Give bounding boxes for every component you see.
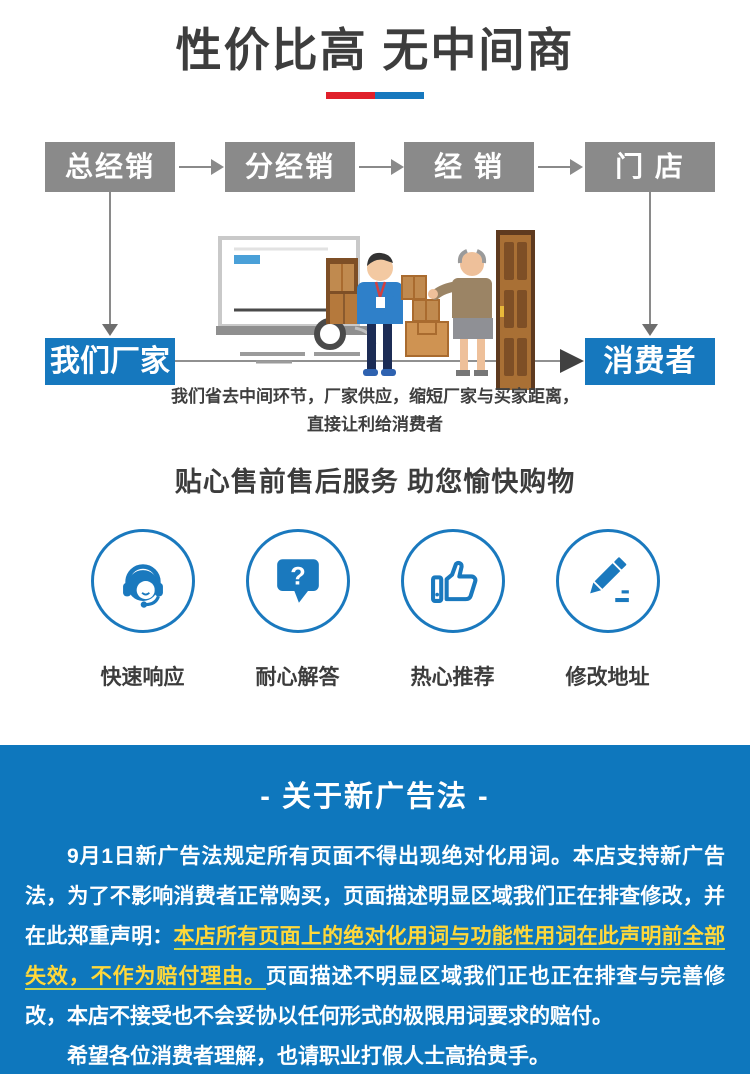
- service-circle: ?: [246, 529, 350, 633]
- arrow-line: [359, 166, 391, 168]
- arrow-right-icon: [570, 159, 583, 175]
- title-section: 性价比高 无中间商: [0, 0, 750, 99]
- title-underline: [326, 92, 424, 99]
- service-circle: [91, 529, 195, 633]
- flow-box-dealer: 经 销: [404, 142, 534, 192]
- service-item-patient-answers: ? 耐心解答: [245, 529, 351, 691]
- arrow-line: [538, 166, 570, 168]
- service-label: 耐心解答: [256, 661, 340, 691]
- service-circle: [401, 529, 505, 633]
- floor-boxes: [406, 300, 448, 356]
- title-underline-blue: [375, 92, 424, 99]
- consumer-box: 消费者: [585, 338, 715, 385]
- service-item-fast-response: 快速响应: [90, 529, 196, 691]
- service-item-recommendation: 热心推荐: [400, 529, 506, 691]
- cargo-boxes: [326, 258, 358, 324]
- flow-box-store: 门 店: [585, 142, 715, 192]
- service-circle: [556, 529, 660, 633]
- delivery-illustration: [210, 230, 535, 398]
- arrow-right-icon: [391, 159, 404, 175]
- arrow-line: [179, 166, 211, 168]
- service-label: 修改地址: [566, 661, 650, 691]
- service-label: 快速响应: [101, 661, 185, 691]
- factory-box: 我们厂家: [45, 338, 175, 385]
- title-underline-red: [326, 92, 375, 99]
- flow-caption: 我们省去中间环节，厂家供应，缩短厂家与买家距离，直接让利给消费者: [171, 383, 579, 439]
- notice-paragraph-2: 希望各位消费者理解，也请职业打假人士高抬贵手。: [25, 1037, 725, 1077]
- big-arrow-right-icon: [560, 349, 584, 373]
- services-section: 贴心售前售后服务 助您愉快购物 快速响应: [0, 440, 750, 691]
- flow-box-general-distributor: 总经销: [45, 142, 175, 192]
- notice-paragraph-1: 9月1日新广告法规定所有页面不得出现绝对化用词。本店支持新广告法，为了不影响消费…: [25, 837, 725, 1037]
- services-row: 快速响应 ? 耐心解答: [0, 529, 750, 691]
- arrow-down-icon: [642, 324, 658, 336]
- service-item-change-address: 修改地址: [555, 529, 661, 691]
- distribution-flow-diagram: 总经销 分经销 经 销 门 店 我们厂家 消费者: [0, 130, 750, 440]
- notice-title: - 关于新广告法 -: [25, 773, 725, 815]
- notice-body: 9月1日新广告法规定所有页面不得出现绝对化用词。本店支持新广告法，为了不影响消费…: [25, 837, 725, 1077]
- page-title: 性价比高 无中间商: [0, 24, 750, 77]
- pencil-edit-icon: [579, 552, 637, 610]
- thumbs-up-icon: [424, 552, 482, 610]
- service-label: 热心推荐: [411, 661, 495, 691]
- question-mark-glyph: ?: [290, 563, 306, 591]
- headset-agent-icon: [114, 552, 172, 610]
- question-bubble-icon: ?: [269, 552, 327, 610]
- services-heading: 贴心售前售后服务 助您愉快购物: [0, 440, 750, 499]
- ad-law-notice-section: - 关于新广告法 - 9月1日新广告法规定所有页面不得出现绝对化用词。本店支持新…: [0, 745, 750, 1074]
- arrow-line-down-left: [109, 192, 111, 324]
- door-icon: [496, 230, 535, 390]
- arrow-right-icon: [211, 159, 224, 175]
- flow-box-sub-distributor: 分经销: [225, 142, 355, 192]
- arrow-line-down-right: [649, 192, 651, 324]
- arrow-down-icon: [102, 324, 118, 336]
